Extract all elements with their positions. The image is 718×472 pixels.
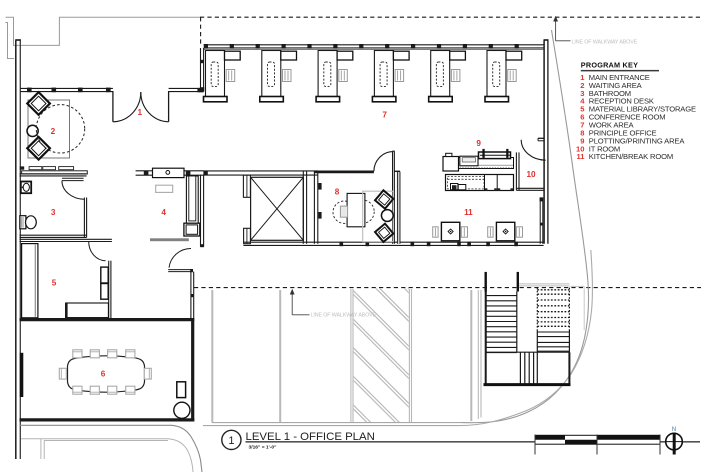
svg-text:8: 8 (335, 188, 340, 197)
svg-text:LINE OF WALKWAY ABOVE: LINE OF WALKWAY ABOVE (311, 312, 377, 318)
svg-text:1: 1 (138, 108, 143, 117)
svg-text:KITCHEN/BREAK ROOM: KITCHEN/BREAK ROOM (589, 152, 673, 161)
svg-text:6: 6 (101, 370, 106, 379)
svg-text:11: 11 (576, 152, 585, 161)
svg-text:PROGRAM KEY: PROGRAM KEY (581, 60, 638, 69)
svg-text:2: 2 (51, 127, 56, 136)
svg-text:9: 9 (476, 139, 481, 148)
svg-text:1: 1 (228, 435, 234, 447)
svg-text:5: 5 (52, 279, 57, 288)
svg-text:LINE OF WALKWAY ABOVE: LINE OF WALKWAY ABOVE (572, 40, 638, 46)
svg-text:3/16" = 1'-0": 3/16" = 1'-0" (249, 444, 277, 450)
svg-text:7: 7 (382, 110, 387, 119)
svg-text:10: 10 (526, 170, 536, 179)
svg-text:4: 4 (161, 208, 166, 217)
svg-text:3: 3 (51, 208, 56, 217)
svg-text:N: N (672, 426, 677, 433)
svg-text:11: 11 (464, 208, 473, 217)
